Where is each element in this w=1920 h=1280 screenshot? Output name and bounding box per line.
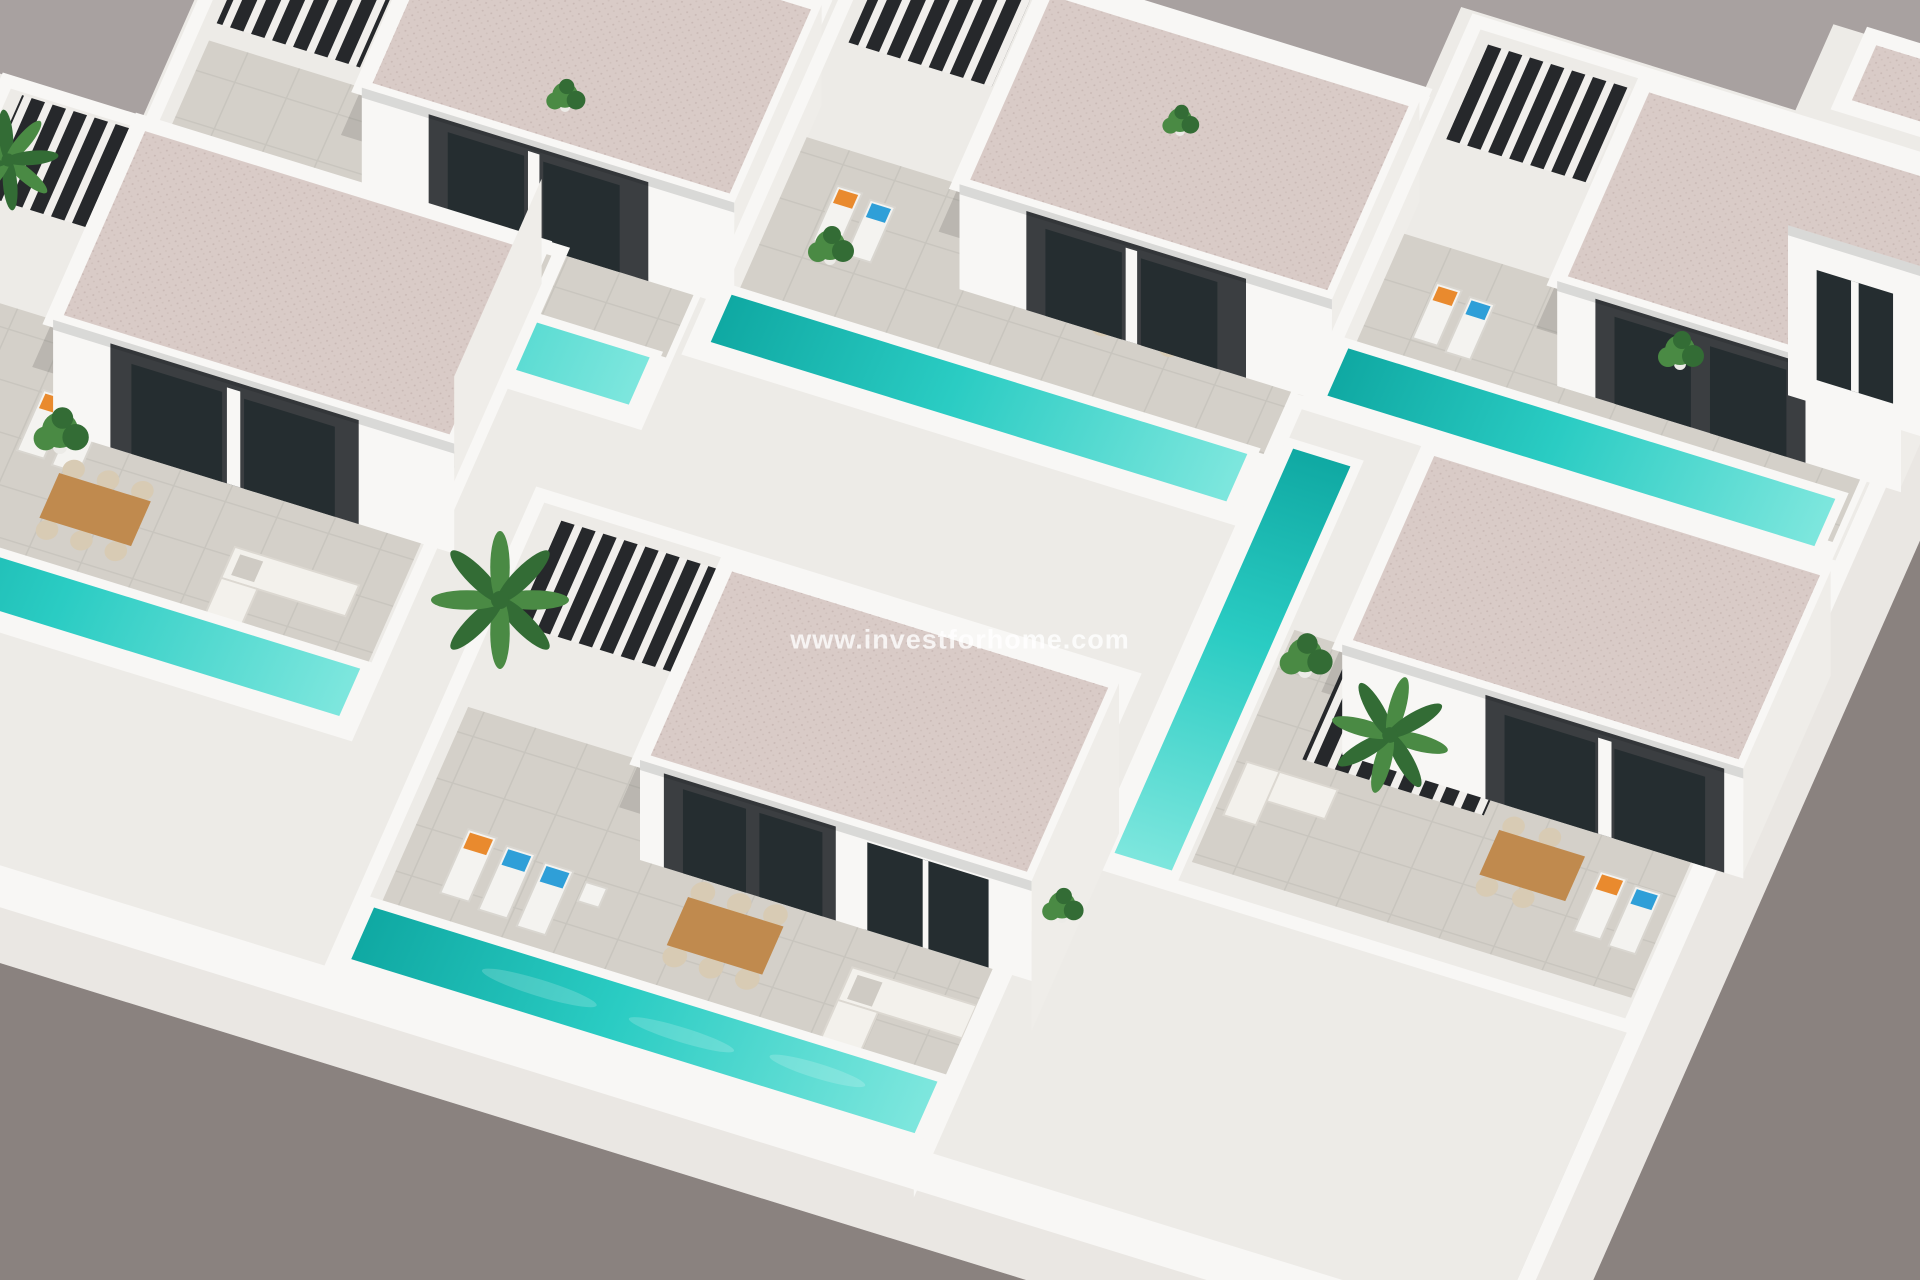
- watermark-text: www.investforhome.com: [790, 625, 1130, 656]
- door-frame: [923, 859, 929, 949]
- facade-pillar: [858, 835, 868, 930]
- facade-pillar: [1126, 248, 1137, 345]
- window-frame: [1851, 281, 1859, 393]
- palm-tree: [431, 531, 569, 669]
- facade-pillar: [227, 387, 240, 487]
- facade-pillar: [1598, 738, 1611, 838]
- render-canvas: www.investforhome.com: [0, 0, 1920, 1280]
